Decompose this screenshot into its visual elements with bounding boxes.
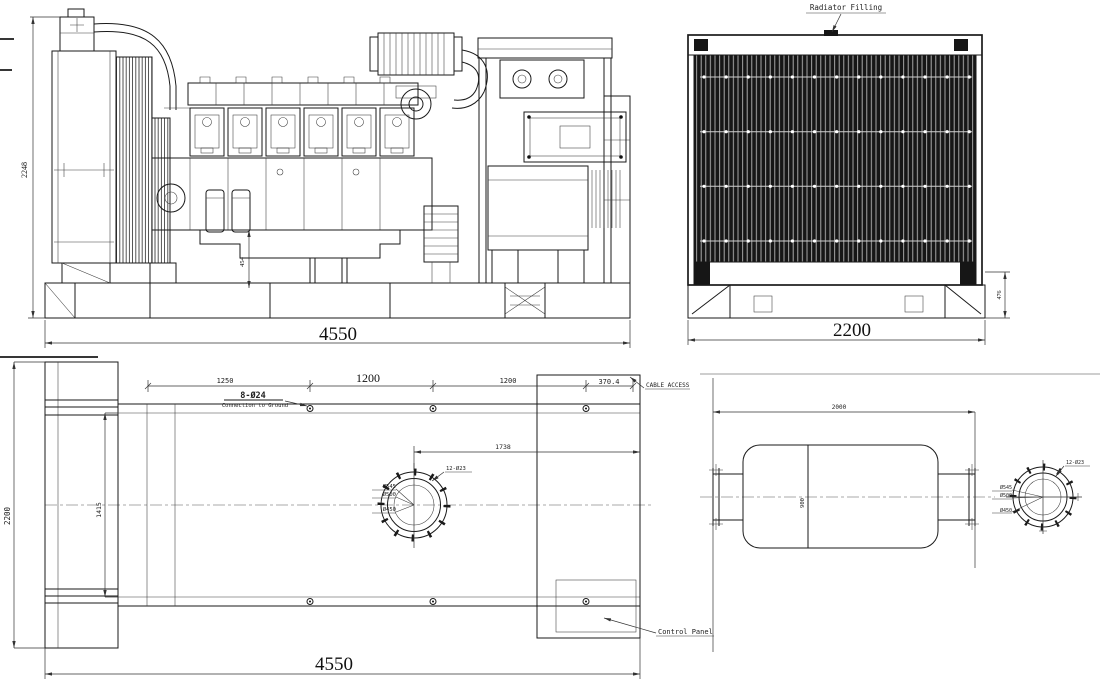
dim-plan-width-text: 2200 xyxy=(3,506,12,525)
muffler-flange-outer-dia: Ø545 xyxy=(1000,484,1012,491)
flange-bolt-circle-dia: Ø500 xyxy=(383,491,396,498)
dim-base-height-text: 476 xyxy=(997,291,1003,300)
radiator-filling-label: Radiator Filling xyxy=(810,3,882,12)
control-panel-label: Control Panel xyxy=(658,628,713,636)
radiator-filler-cap xyxy=(824,30,838,36)
chain-dim-1200a: 1200 xyxy=(356,371,380,385)
chain-dim-1250: 1250 xyxy=(217,377,234,385)
dim-rail-span-text: 1415 xyxy=(95,502,103,518)
foundation-holes-label: 8-Ø24 xyxy=(240,390,266,401)
muffler-flange-inner-dia: Ø450 xyxy=(1000,507,1012,514)
radiator-core-hatch xyxy=(116,57,152,263)
flange-bolts-label: 12-Ø23 xyxy=(446,465,466,472)
dim-muffler-length-text: 2000 xyxy=(832,404,847,411)
dim-overall-width: 2200 xyxy=(833,320,871,341)
dim-plan-length-text: 4550 xyxy=(315,654,353,675)
dim-overall-length: 4550 xyxy=(319,324,357,345)
dim-muffler-width-text: 900 xyxy=(800,498,806,508)
muffler-flange-bolt-circle-dia: Ø500 xyxy=(1000,492,1012,499)
chain-dim-1200b: 1200 xyxy=(500,377,517,385)
chain-dim-370-4: 370.4 xyxy=(598,378,619,386)
cable-access-label: CABLE ACCESS xyxy=(646,382,690,389)
dim-overall-height: 2248 xyxy=(20,162,29,178)
flange-inner-dia: Ø450 xyxy=(383,506,396,513)
radiator-grille xyxy=(694,55,976,262)
muffler-flange-bolts-label: 12-Ø23 xyxy=(1066,459,1084,466)
genset-ga-drawing: 2248 4550 454 Radiator Filling 2200 xyxy=(0,0,1110,683)
flange-outer-dia: Ø545 xyxy=(383,483,396,490)
dim-oil-drain-offset: 454 xyxy=(239,256,246,267)
dim-exhaust-offset-text: 1738 xyxy=(495,443,511,451)
connection-ground-label: Connection to Ground xyxy=(222,403,288,409)
